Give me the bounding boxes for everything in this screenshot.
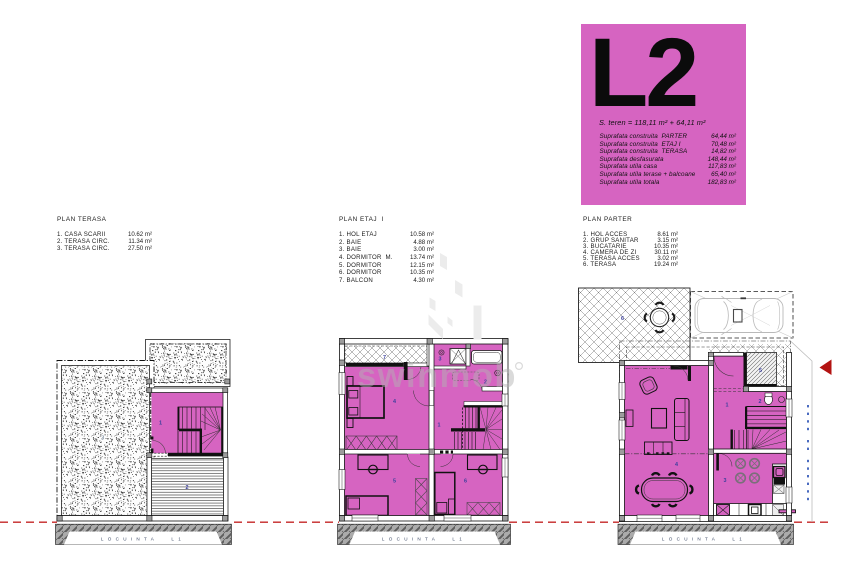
svg-text:3: 3 xyxy=(724,478,727,484)
svg-text:7: 7 xyxy=(383,355,386,361)
svg-text:LOCUINTA L1: LOCUINTA L1 xyxy=(101,537,185,542)
svg-text:LOCUINTA L1: LOCUINTA L1 xyxy=(662,537,746,542)
svg-text:2: 2 xyxy=(484,380,487,386)
svg-text:2: 2 xyxy=(186,485,189,491)
svg-text:1: 1 xyxy=(159,421,162,427)
svg-text:5: 5 xyxy=(759,368,762,374)
svg-text:1: 1 xyxy=(438,423,441,429)
svg-text:4: 4 xyxy=(393,399,396,405)
svg-text:6: 6 xyxy=(621,316,624,322)
svg-text:3: 3 xyxy=(439,357,442,363)
svg-text:6: 6 xyxy=(464,479,467,485)
svg-text:LOCUINTA L1: LOCUINTA L1 xyxy=(382,537,466,542)
svg-text:2: 2 xyxy=(759,399,762,405)
svg-text:1: 1 xyxy=(726,403,729,409)
svg-text:5: 5 xyxy=(393,479,396,485)
svg-text:4: 4 xyxy=(675,462,678,468)
